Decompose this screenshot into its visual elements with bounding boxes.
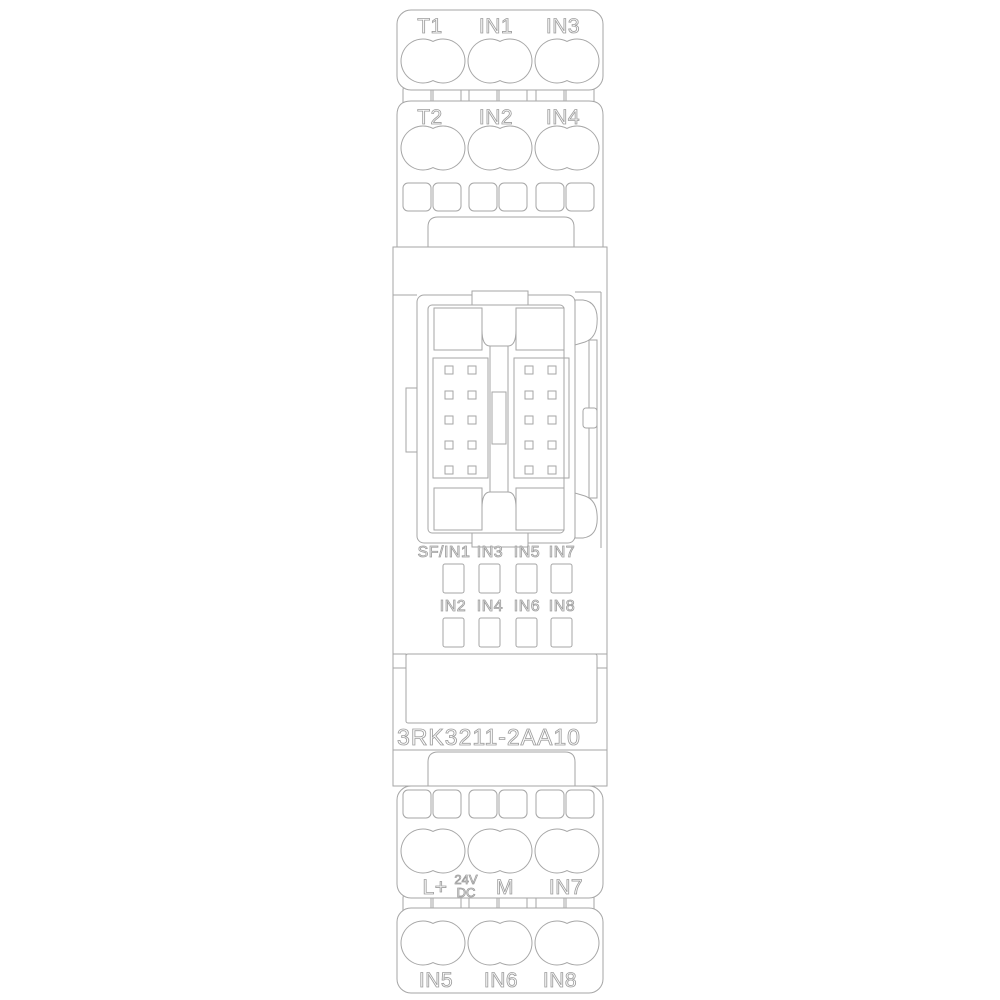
led-indicator — [551, 564, 572, 593]
terminal-block-top-b: T2 IN2 IN4 — [397, 101, 603, 247]
terminal-label-in4: IN4 — [546, 106, 580, 129]
terminal-block-bottom-c: L+ 24V DC M IN7 — [397, 786, 603, 900]
led-indicator — [443, 618, 464, 647]
marking-plate-bottom — [428, 752, 575, 786]
terminal-label-in3: IN3 — [546, 15, 580, 38]
terminal-hole-t2 — [401, 126, 465, 170]
terminal-label-t1: T1 — [417, 15, 443, 38]
led-indicator — [551, 618, 572, 647]
led-label-in2: IN2 — [440, 598, 466, 615]
led-label-in8: IN8 — [549, 598, 575, 615]
inscription-plate — [406, 654, 597, 723]
keying-block — [434, 488, 482, 530]
clamp-slot — [499, 183, 527, 211]
terminal-label-lplus: L+ — [423, 876, 448, 899]
terminal-hole-m — [468, 829, 532, 873]
clamp-slot — [433, 790, 461, 818]
module-line-drawing: T1 IN1 IN3 T2 IN2 IN4 — [0, 0, 1000, 1000]
terminal-label-in1: IN1 — [479, 15, 513, 38]
clamp-slot — [536, 183, 564, 211]
terminal-hole-in2 — [468, 126, 532, 170]
terminal-hole-in7 — [535, 829, 599, 873]
clamp-slot — [566, 183, 594, 211]
led-indicator — [479, 618, 500, 647]
terminal-block-bottom-d: IN5 IN6 IN8 — [397, 908, 603, 993]
led-label-in4: IN4 — [477, 598, 503, 615]
terminal-block-top-a: T1 IN1 IN3 — [397, 10, 603, 90]
terminal-label-in6: IN6 — [484, 969, 518, 992]
keying-block — [434, 308, 482, 350]
terminal-hole-in4 — [535, 126, 599, 170]
terminal-label-in8: IN8 — [543, 969, 577, 992]
connector-top-tab — [472, 291, 528, 305]
technical-drawing-page: T1 IN1 IN3 T2 IN2 IN4 — [0, 0, 1000, 1000]
led-label-in5: IN5 — [514, 544, 540, 561]
terminal-label-in2: IN2 — [479, 106, 513, 129]
terminal-hole-lplus — [401, 829, 465, 873]
terminal-label-in7-bottom: IN7 — [549, 876, 583, 899]
led-indicator — [443, 564, 464, 593]
led-label-in3: IN3 — [477, 544, 503, 561]
led-label-in6: IN6 — [514, 598, 540, 615]
terminal-label-t2: T2 — [417, 106, 443, 129]
keying-block — [516, 488, 564, 530]
terminal-label-in5: IN5 — [419, 969, 453, 992]
led-label-sf-in1: SF/IN1 — [418, 544, 471, 561]
led-label-in7: IN7 — [549, 544, 575, 561]
led-indicator — [479, 564, 500, 593]
clamp-slot — [499, 790, 527, 818]
terminal-label-dc: DC — [457, 885, 476, 900]
clamp-slot — [469, 183, 497, 211]
terminal-hole-in1 — [468, 39, 532, 83]
plate-tab-left — [393, 654, 406, 668]
clamp-slot — [433, 183, 461, 211]
terminal-hole-in5 — [401, 921, 465, 965]
clamp-slot — [403, 790, 431, 818]
product-number: 3RK3211-2AA10 — [397, 724, 581, 750]
terminal-hole-in6 — [468, 921, 532, 965]
clamp-slot — [403, 183, 431, 211]
terminal-hole-in8 — [535, 921, 599, 965]
keying-block — [516, 308, 564, 350]
led-indicator — [516, 564, 537, 593]
led-indicator — [516, 618, 537, 647]
terminal-hole-t1 — [401, 39, 465, 83]
terminal-hole-in3 — [535, 39, 599, 83]
clamp-slot — [566, 790, 594, 818]
clamp-slot — [536, 790, 564, 818]
clamp-slot — [469, 790, 497, 818]
ribbon-connector — [393, 291, 601, 548]
latch-mid-tab — [583, 408, 597, 428]
marking-plate-top — [428, 217, 574, 247]
terminal-label-m: M — [496, 876, 514, 899]
